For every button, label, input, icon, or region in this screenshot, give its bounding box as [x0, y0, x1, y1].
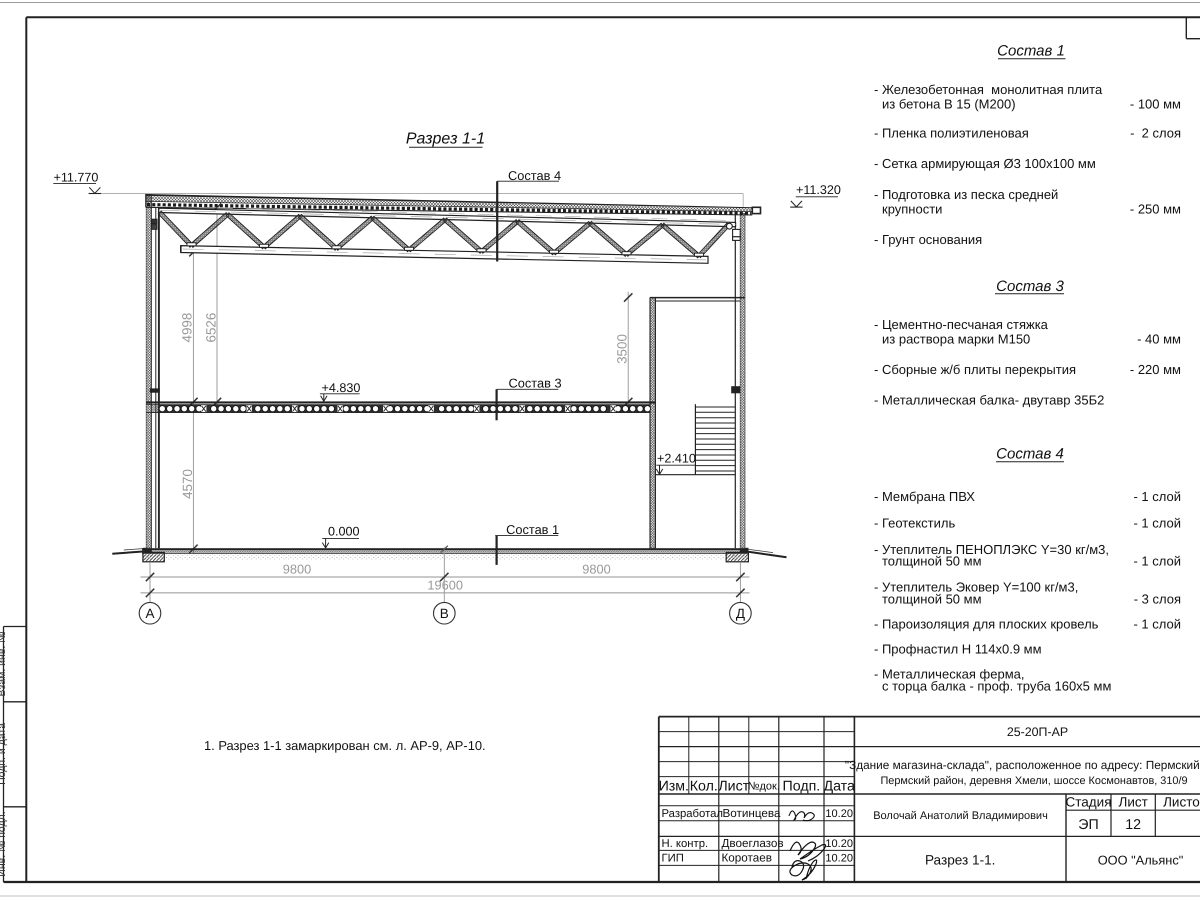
- svg-text:+11.770: +11.770: [54, 171, 99, 185]
- svg-text:1. Разрез 1-1 замаркирован см.: 1. Разрез 1-1 замаркирован см. л. АР-9, …: [204, 738, 486, 753]
- svg-text:- 1 слой: - 1 слой: [1133, 617, 1181, 632]
- svg-text:4998: 4998: [180, 313, 195, 343]
- svg-text:6526: 6526: [203, 313, 218, 343]
- svg-text:толщиной 50 мм: толщиной 50 мм: [882, 592, 982, 607]
- svg-text:- Грунт основания: - Грунт основания: [874, 232, 982, 247]
- svg-text:Лист: Лист: [718, 778, 749, 794]
- svg-text:Инв. № подл.: Инв. № подл.: [0, 811, 8, 876]
- svg-text:Дата: Дата: [823, 778, 855, 794]
- svg-text:- Сборные ж/б плиты перекрытия: - Сборные ж/б плиты перекрытия: [874, 362, 1076, 377]
- svg-text:Состав 1: Состав 1: [997, 43, 1065, 60]
- svg-text:толщиной 50 мм: толщиной 50 мм: [882, 554, 982, 569]
- svg-text:Пермский район, деревня Хмели,: Пермский район, деревня Хмели, шоссе Кос…: [880, 775, 1187, 787]
- svg-text:10.20: 10.20: [825, 853, 853, 865]
- svg-text:Подп.: Подп.: [783, 778, 821, 794]
- svg-text:А: А: [145, 606, 154, 621]
- svg-text:- Пленка полиэтиленовая: - Пленка полиэтиленовая: [874, 126, 1029, 141]
- svg-text:Стадия: Стадия: [1065, 795, 1111, 810]
- svg-text:крупности: крупности: [882, 202, 942, 217]
- svg-text:- 40 мм: - 40 мм: [1137, 332, 1181, 347]
- svg-text:- 220 мм: - 220 мм: [1130, 362, 1181, 377]
- svg-text:ГИП: ГИП: [662, 853, 684, 865]
- svg-text:4570: 4570: [180, 469, 195, 499]
- svg-text:- 3 слоя: - 3 слоя: [1134, 592, 1181, 607]
- svg-text:- Подготовка из песка средней: - Подготовка из песка средней: [874, 187, 1058, 202]
- svg-text:Д: Д: [736, 606, 745, 621]
- svg-text:Состав 4: Состав 4: [996, 446, 1064, 463]
- svg-text:Изм.: Изм.: [659, 778, 689, 794]
- svg-text:- 1 слой: - 1 слой: [1133, 554, 1181, 569]
- svg-text:Н. контр.: Н. контр.: [662, 838, 709, 850]
- svg-text:9800: 9800: [582, 562, 610, 577]
- svg-text:из бетона В 15 (М200): из бетона В 15 (М200): [882, 97, 1016, 112]
- svg-text:- Железобетонная монолитная п: - Железобетонная монолитная плита: [874, 82, 1103, 97]
- svg-text:0.000: 0.000: [328, 525, 360, 539]
- svg-text:19600: 19600: [427, 578, 463, 593]
- svg-text:Подп. и дата: Подп. и дата: [0, 723, 8, 785]
- svg-text:+4.830: +4.830: [322, 381, 361, 395]
- svg-text:из раствора марки М150: из раствора марки М150: [882, 332, 1030, 347]
- svg-text:- Сетка армирующая Ø3 100х100: - Сетка армирующая Ø3 100х100 мм: [874, 156, 1096, 171]
- svg-text:- Мембрана ПВХ: - Мембрана ПВХ: [874, 489, 975, 504]
- svg-text:"Здание магазина-склада", расп: "Здание магазина-склада", расположенное …: [845, 758, 1200, 772]
- svg-text:Разрез 1-1.: Разрез 1-1.: [925, 853, 996, 868]
- svg-text:ЭП: ЭП: [1078, 817, 1098, 833]
- svg-text:- Профнастил Н 114х0.9 мм: - Профнастил Н 114х0.9 мм: [874, 642, 1042, 657]
- svg-text:В: В: [440, 606, 449, 621]
- svg-text:- Пароизоляция для плоских кро: - Пароизоляция для плоских кровель: [874, 617, 1099, 632]
- svg-text:- 1 слой: - 1 слой: [1133, 516, 1181, 531]
- svg-text:- 250 мм: - 250 мм: [1130, 202, 1181, 217]
- svg-text:Двоеглазов: Двоеглазов: [722, 837, 784, 850]
- svg-text:Состав 3: Состав 3: [509, 375, 562, 390]
- svg-text:Листов: Листов: [1163, 795, 1200, 810]
- svg-text:Лист: Лист: [1119, 795, 1148, 810]
- svg-text:с торца балка - проф. труба 16: с торца балка - проф. труба 160х5 мм: [882, 679, 1111, 694]
- svg-text:ООО "Альянс": ООО "Альянс": [1098, 853, 1184, 868]
- svg-text:- 1 слой: - 1 слой: [1133, 489, 1181, 504]
- svg-text:- 2 слоя: - 2 слоя: [1130, 126, 1181, 141]
- svg-text:10.20: 10.20: [825, 808, 853, 820]
- svg-text:Состав 1: Состав 1: [506, 522, 559, 537]
- svg-text:+2.410: +2.410: [657, 452, 696, 466]
- svg-text:Взам. инв. №: Взам. инв. №: [0, 631, 8, 696]
- svg-text:12: 12: [1125, 817, 1141, 833]
- svg-text:25-20П-АР: 25-20П-АР: [1007, 725, 1068, 739]
- svg-text:- Геотекстиль: - Геотекстиль: [874, 516, 955, 531]
- svg-text:Волочай Анатолий Владимирович: Волочай Анатолий Владимирович: [873, 810, 1048, 822]
- svg-text:Коротаев: Коротаев: [722, 852, 772, 865]
- svg-text:3500: 3500: [614, 334, 629, 364]
- svg-text:- Металлическая балка- двутавр: - Металлическая балка- двутавр 35Б2: [874, 393, 1104, 408]
- svg-text:+11.320: +11.320: [796, 183, 841, 197]
- svg-text:10.20: 10.20: [825, 838, 853, 850]
- svg-text:Вотинцева: Вотинцева: [723, 807, 782, 820]
- svg-text:- Цементно-песчаная стяжка: - Цементно-песчаная стяжка: [874, 317, 1049, 332]
- svg-text:№док.: №док.: [748, 781, 780, 793]
- svg-text:- 100 мм: - 100 мм: [1130, 97, 1181, 112]
- svg-text:Разрез 1-1: Разрез 1-1: [406, 131, 485, 148]
- svg-text:Состав 4: Состав 4: [508, 168, 561, 183]
- svg-text:Разработал: Разработал: [662, 808, 724, 820]
- svg-text:Кол.: Кол.: [690, 778, 718, 794]
- svg-text:Состав 3: Состав 3: [996, 278, 1064, 295]
- svg-text:9800: 9800: [283, 562, 311, 577]
